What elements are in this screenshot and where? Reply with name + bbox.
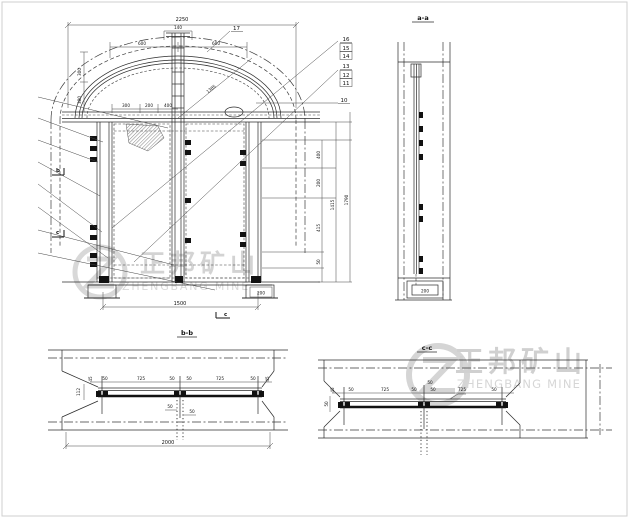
section-b-title: b-b (181, 329, 193, 337)
section-c-posts (338, 385, 508, 455)
section-marker-b: b (56, 168, 60, 174)
section-marker-c-bottom: c (224, 312, 227, 318)
dim-b-left-vertical: 112 (76, 388, 81, 396)
dim-right-1: 400 (316, 151, 321, 159)
dim-opening: 1500 (174, 301, 187, 307)
section-b-view: b-b (48, 329, 288, 449)
balloon-17: 17 (233, 26, 240, 32)
section-b-walls (62, 350, 274, 430)
dim-spring-3: 400 (164, 103, 172, 108)
balloon-12: 12 (343, 73, 350, 79)
hatched-patch (126, 124, 164, 151)
dim-spring-1: 300 (122, 103, 130, 108)
dim-left-lower: 300 (77, 96, 82, 104)
dim-b-0: 50 (102, 376, 108, 381)
dim-crown: 140 (174, 25, 182, 30)
dim-arch-left: 600 (138, 41, 146, 46)
dim-c-5: 50 (491, 387, 497, 392)
dim-b-end-left: 45 (88, 376, 93, 382)
dim-b-5: 50 (250, 376, 256, 381)
dim-right-outer-total: 1790 (344, 194, 349, 205)
section-marker-c-left: c (56, 230, 59, 236)
balloon-14: 14 (343, 54, 350, 60)
dim-c-center-top: 50 (427, 380, 433, 385)
section-b-dimensions: 50 725 50 50 725 50 45 45 112 50 50 2000 (63, 376, 273, 449)
dim-b-4: 725 (216, 376, 224, 381)
dim-right-2: 200 (316, 179, 321, 187)
dim-b-1: 725 (137, 376, 145, 381)
watermark-bottom-right: 正邦矿山 ZHENGBANG MINE (409, 345, 587, 404)
dim-b-overall: 2000 (162, 440, 175, 446)
balloon-15: 15 (343, 46, 350, 52)
dim-c-left-vertical: 50 (324, 401, 329, 407)
dim-c-3: 50 (430, 387, 436, 392)
dim-left-upper: 300 (77, 68, 82, 76)
balloon-16: 16 (343, 37, 350, 43)
dim-c-2: 50 (411, 387, 417, 392)
dim-b-center-2: 50 (189, 409, 195, 414)
dim-side-footing: 200 (421, 289, 429, 294)
side-view-title: a-a (417, 14, 428, 22)
cad-drawing-svg: 正邦矿山 ZHENGBANG MINE 正邦矿山 ZHENGBANG MINE (0, 0, 629, 518)
balloon-13: 13 (343, 64, 350, 70)
dim-b-2: 50 (169, 376, 175, 381)
door-plate-section (411, 64, 423, 274)
dim-spring-2: 200 (145, 103, 153, 108)
section-c-title: c-c (422, 344, 433, 352)
dim-b-3: 50 (186, 376, 192, 381)
dim-sill-offset: 200 (257, 291, 265, 296)
side-view: a-a 200 (395, 14, 452, 300)
watermark-cn-text: 正邦矿山 (140, 249, 260, 278)
dim-right-inner-total: 1415 (330, 199, 335, 210)
dim-c-0: 50 (348, 387, 354, 392)
dim-c-4: 725 (458, 387, 466, 392)
hinge-hardware (90, 136, 246, 267)
cad-drawing-page: 正邦矿山 ZHENGBANG MINE 正邦矿山 ZHENGBANG MINE (0, 0, 629, 518)
balloon-11: 11 (343, 81, 350, 87)
dim-b-end-right: 45 (265, 376, 270, 382)
watermark-center: 正邦矿山 ZHENGBANG MINE (75, 247, 260, 297)
dim-radius: 1385 (205, 83, 217, 94)
dim-right-3: 415 (316, 224, 321, 232)
dim-c-1: 725 (381, 387, 389, 392)
dim-b-center-1: 50 (167, 404, 173, 409)
dim-overall-width: 2250 (176, 17, 189, 23)
section-b-posts (96, 376, 264, 440)
dim-c-end-left: 45 (330, 387, 335, 393)
side-footing: 200 (395, 274, 452, 300)
watermark-cn-text: 正邦矿山 (455, 345, 587, 378)
dim-right-4: 50 (316, 259, 321, 265)
balloon-10: 10 (341, 98, 348, 104)
